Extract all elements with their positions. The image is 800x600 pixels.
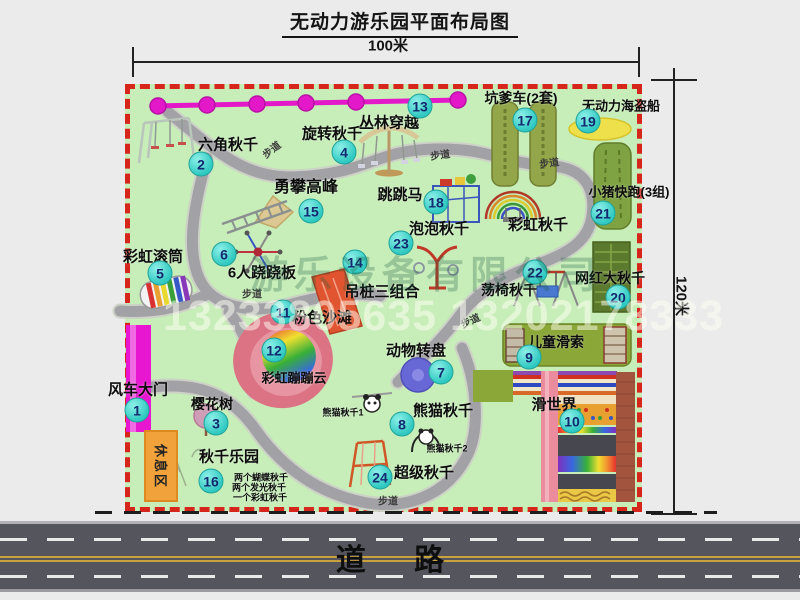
dimension-line-top	[133, 61, 640, 63]
road-label: 道 路	[336, 535, 464, 579]
dimension-tick-right-top	[651, 79, 697, 81]
screenshot-root: 无动力游乐园平面布局图 100米 120米	[0, 0, 800, 600]
watermark-company: 游乐设备有限公司	[250, 244, 602, 299]
page-title-text: 无动力游乐园平面布局图	[282, 12, 518, 38]
boundary-dashed-line	[95, 511, 717, 514]
watermark-phones: 13233805635 13202178333	[163, 292, 724, 341]
page-title: 无动力游乐园平面布局图	[0, 7, 800, 34]
rest-area-label: 休息区	[152, 443, 171, 488]
road: 道 路	[0, 521, 800, 592]
dimension-tick-top-left	[132, 47, 134, 77]
rest-area: 休息区	[144, 430, 178, 502]
dimension-tick-top-right	[638, 47, 640, 77]
